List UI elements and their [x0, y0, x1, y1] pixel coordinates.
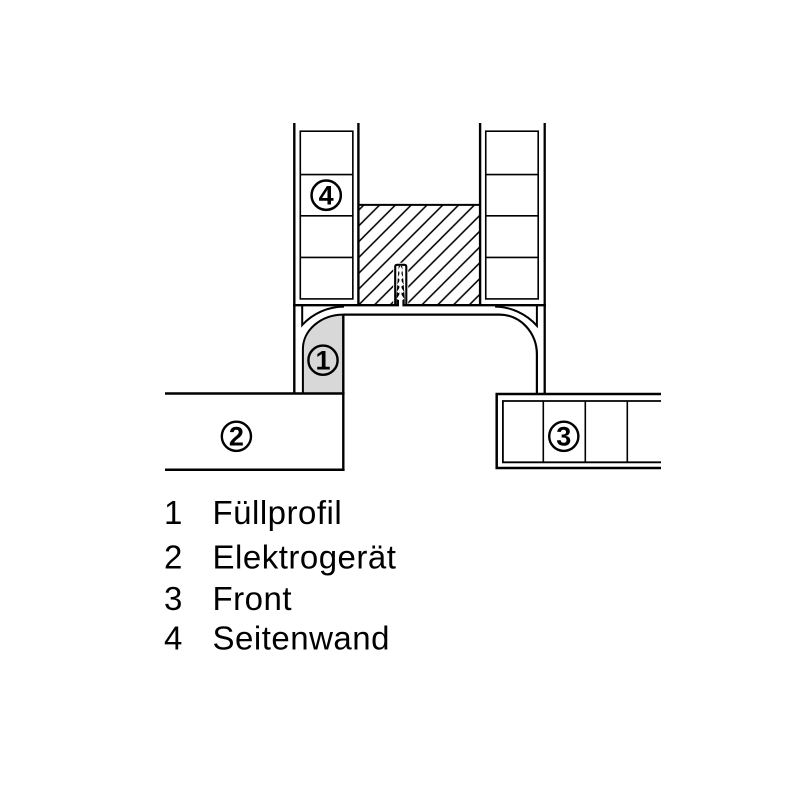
svg-text:4: 4	[164, 620, 183, 657]
svg-text:3: 3	[164, 580, 183, 617]
svg-text:Seitenwand: Seitenwand	[213, 620, 390, 657]
svg-text:Front: Front	[213, 580, 293, 617]
svg-text:Füllprofil: Füllprofil	[213, 494, 343, 531]
svg-text:2: 2	[164, 539, 183, 576]
svg-text:Elektrogerät: Elektrogerät	[213, 539, 397, 576]
svg-text:2: 2	[229, 422, 244, 452]
svg-text:1: 1	[164, 494, 183, 531]
svg-text:4: 4	[319, 181, 334, 211]
svg-text:1: 1	[315, 346, 330, 376]
svg-text:3: 3	[556, 422, 571, 452]
